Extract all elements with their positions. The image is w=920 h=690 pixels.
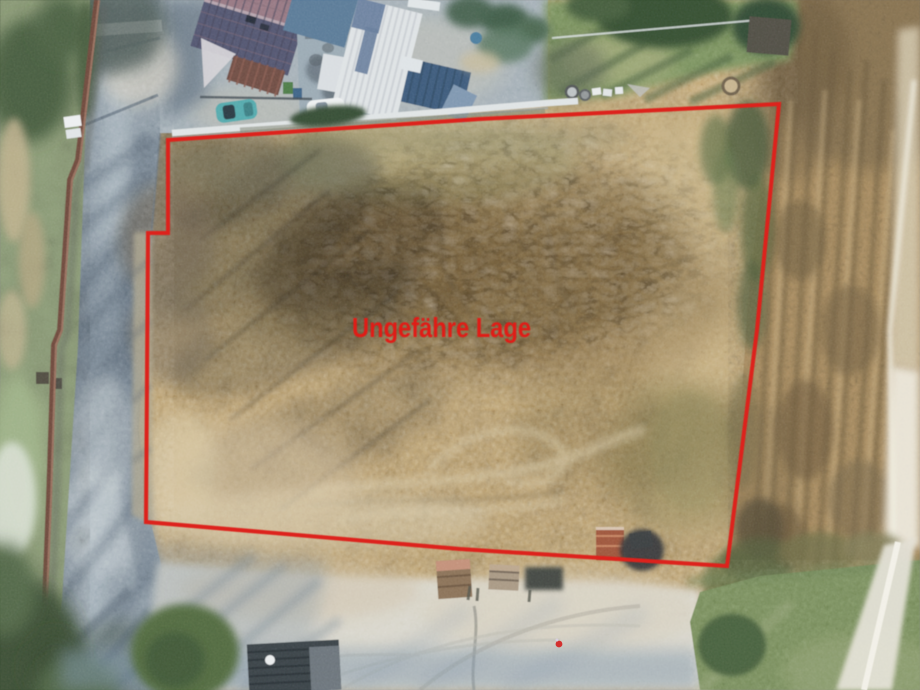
svg-text:Ungefähre Lage: Ungefähre Lage <box>352 312 531 343</box>
